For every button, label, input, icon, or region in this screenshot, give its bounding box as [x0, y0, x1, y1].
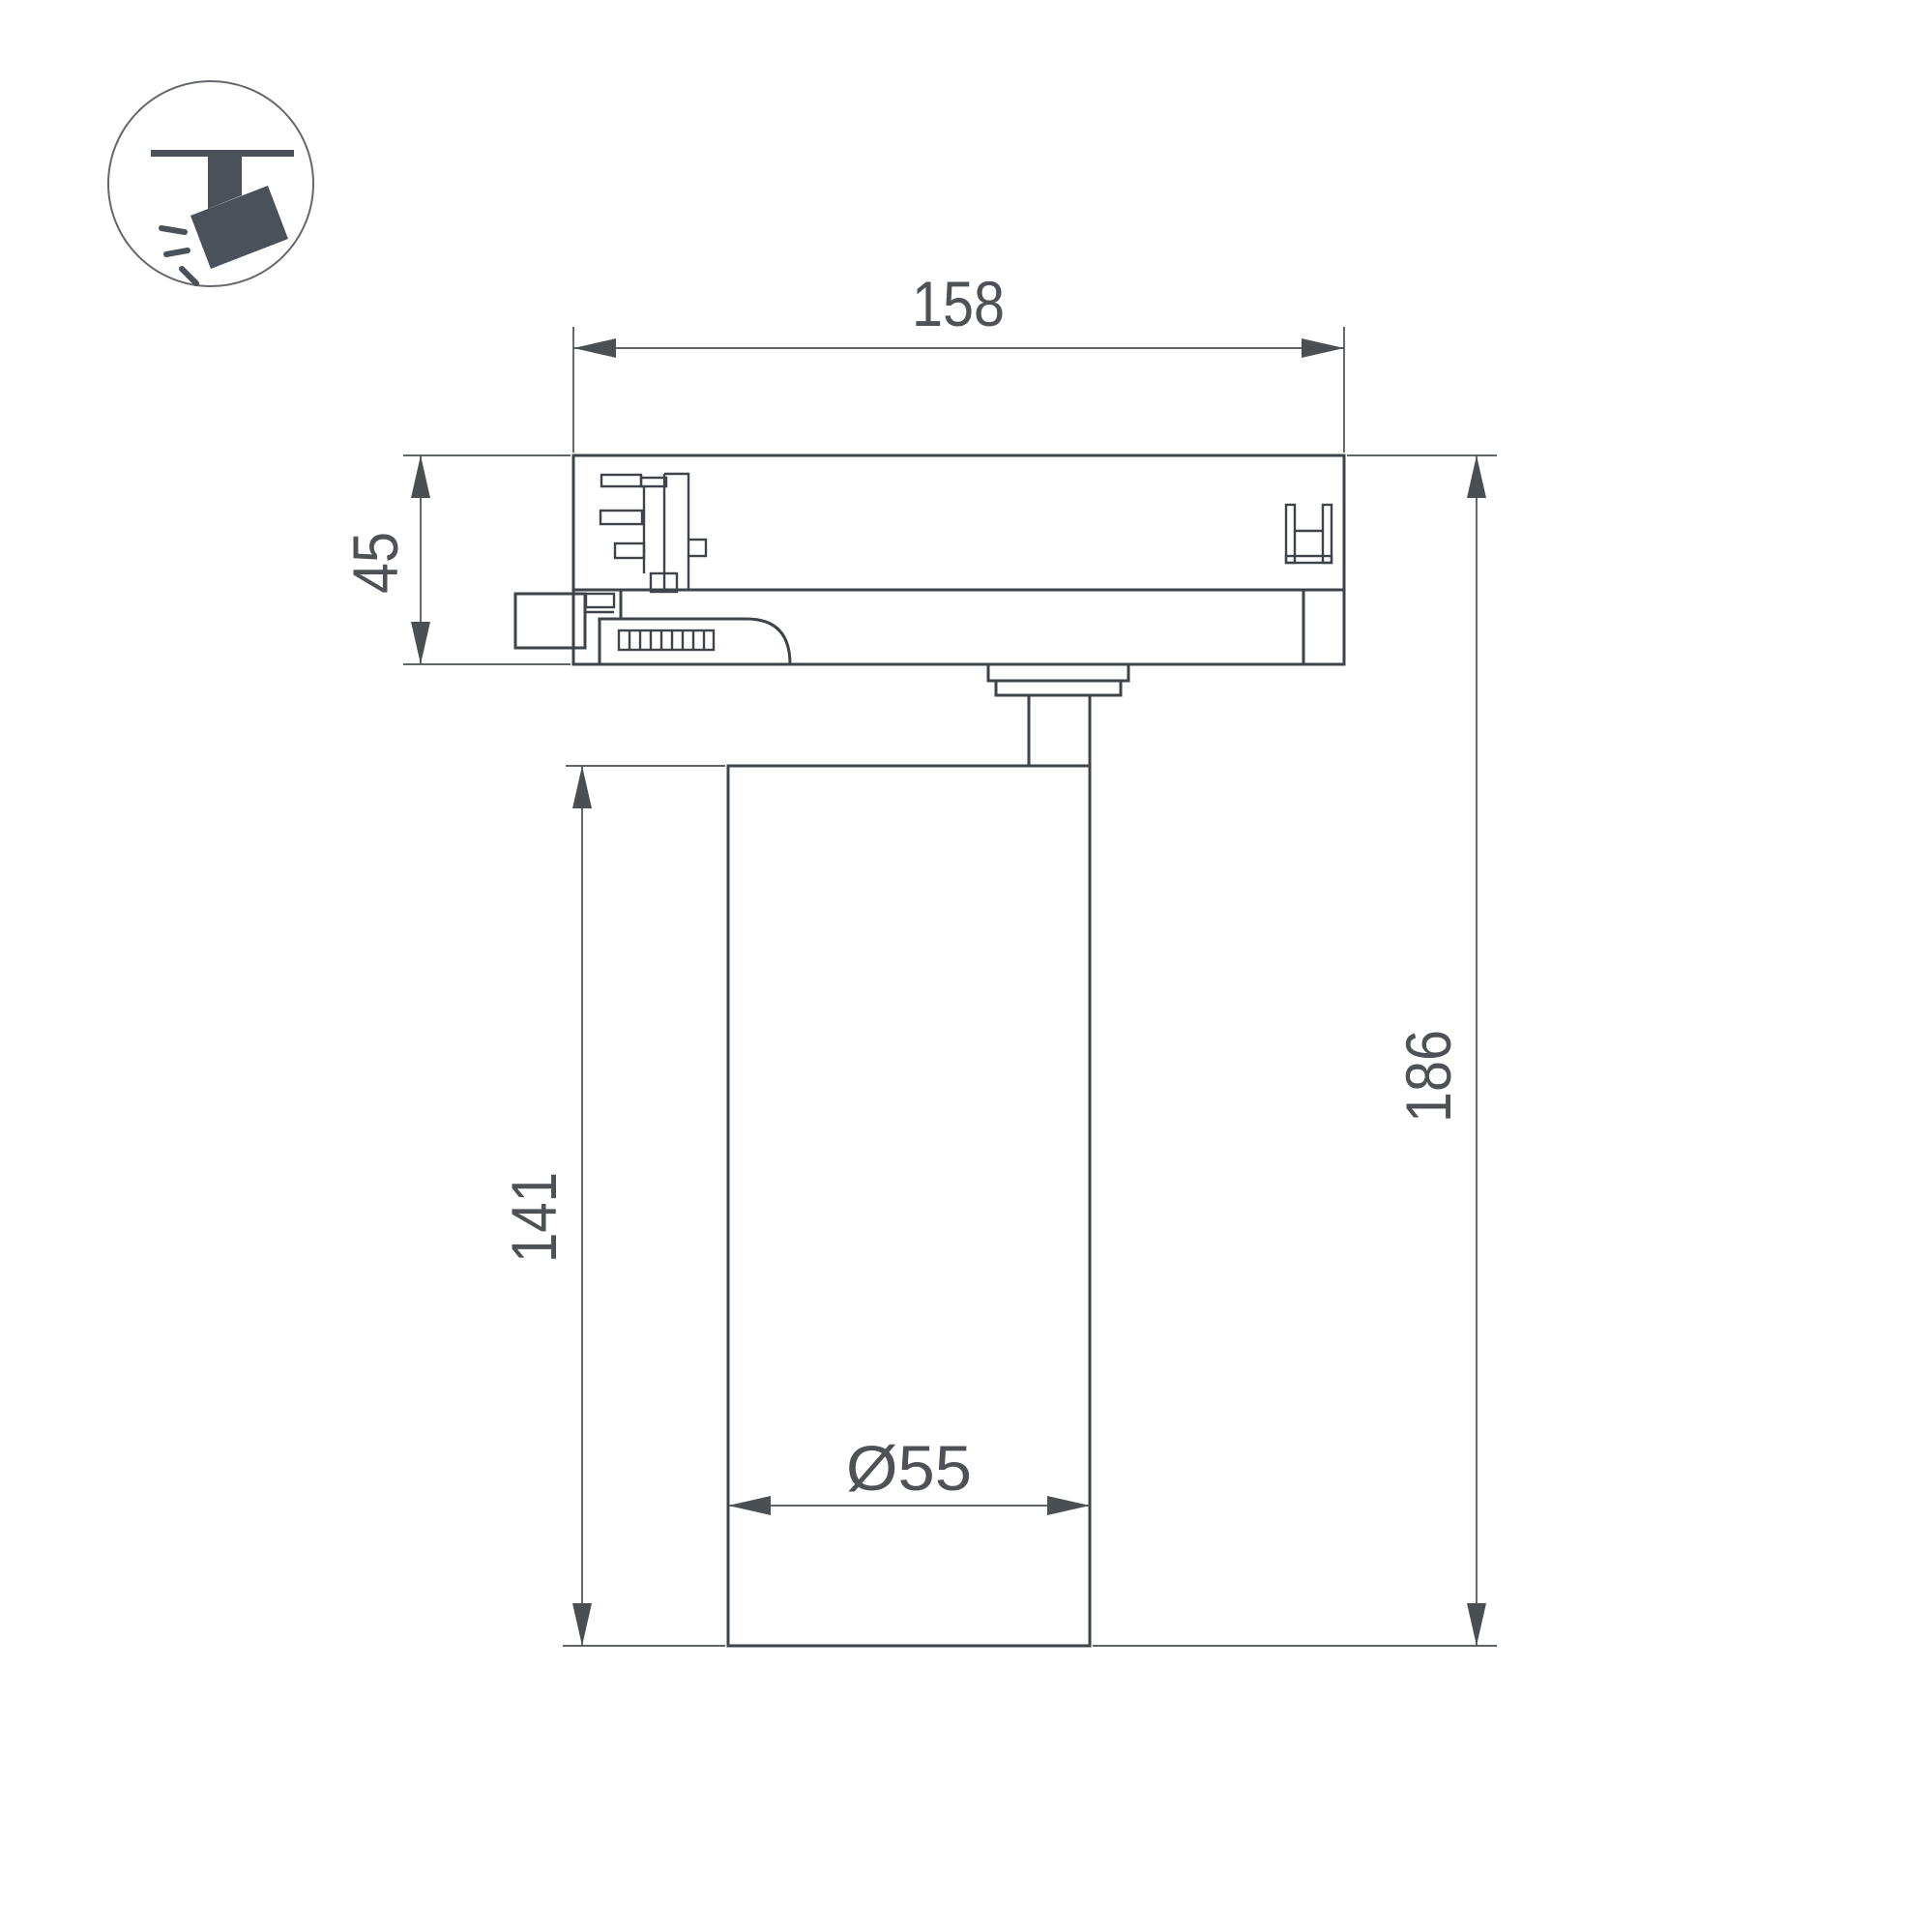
dimension-drawing-svg: 158 45 141 186 Ø55: [0, 0, 1932, 1932]
track-light-badge: [108, 81, 313, 286]
arrowhead: [1467, 455, 1486, 498]
arrowhead: [1467, 1603, 1486, 1646]
track-adapter-drawing: [515, 455, 1344, 766]
arrowhead: [1302, 338, 1344, 358]
lamp-cylinder-body: [728, 766, 1090, 1646]
adapter-lower-housing: [573, 590, 1344, 664]
dimension-track-width: 158: [573, 268, 1344, 453]
grip-ribs: [619, 630, 714, 650]
swivel-flange-step1: [988, 664, 1128, 681]
clip-right-arm: [1323, 505, 1332, 563]
contact-prong: [601, 475, 641, 486]
dimension-label-track-width: 158: [912, 268, 1005, 339]
adapter-clip: [1286, 505, 1332, 563]
dimension-label-adapter-height: 45: [339, 532, 411, 594]
dimension-total-height: 186: [1093, 455, 1497, 1646]
contact-prong: [600, 511, 642, 524]
contact-notch: [688, 540, 706, 556]
light-ray-icon: [166, 250, 188, 254]
clip-left-arm: [1286, 505, 1295, 563]
contact-pin-cap: [641, 478, 666, 486]
grip-outline: [600, 590, 790, 664]
drawing-page: 158 45 141 186 Ø55: [0, 0, 1932, 1932]
contact-prong: [615, 543, 644, 558]
dimension-adapter-height: 45: [339, 455, 571, 664]
dimension-label-body-height: 141: [498, 1172, 570, 1263]
arrowhead: [728, 1496, 771, 1515]
arrowhead: [573, 338, 616, 358]
arrowhead: [411, 622, 430, 664]
arrowhead: [411, 455, 430, 498]
grip-rib-lines: [629, 630, 704, 650]
dimension-body-diameter: Ø55: [728, 1432, 1090, 1515]
arrowhead: [572, 766, 592, 808]
arrowhead: [1047, 1496, 1090, 1515]
latch-detail: [586, 594, 614, 607]
light-ray-icon: [161, 228, 185, 232]
dimension-label-total-height: 186: [1392, 1030, 1464, 1123]
dimension-body-height: 141: [498, 766, 725, 1646]
clip-base: [1286, 556, 1332, 563]
arrowhead: [572, 1603, 592, 1646]
swivel-flange-step2: [996, 681, 1121, 695]
track-rail-icon: [151, 150, 294, 157]
dimension-label-body-diameter: Ø55: [846, 1432, 972, 1504]
